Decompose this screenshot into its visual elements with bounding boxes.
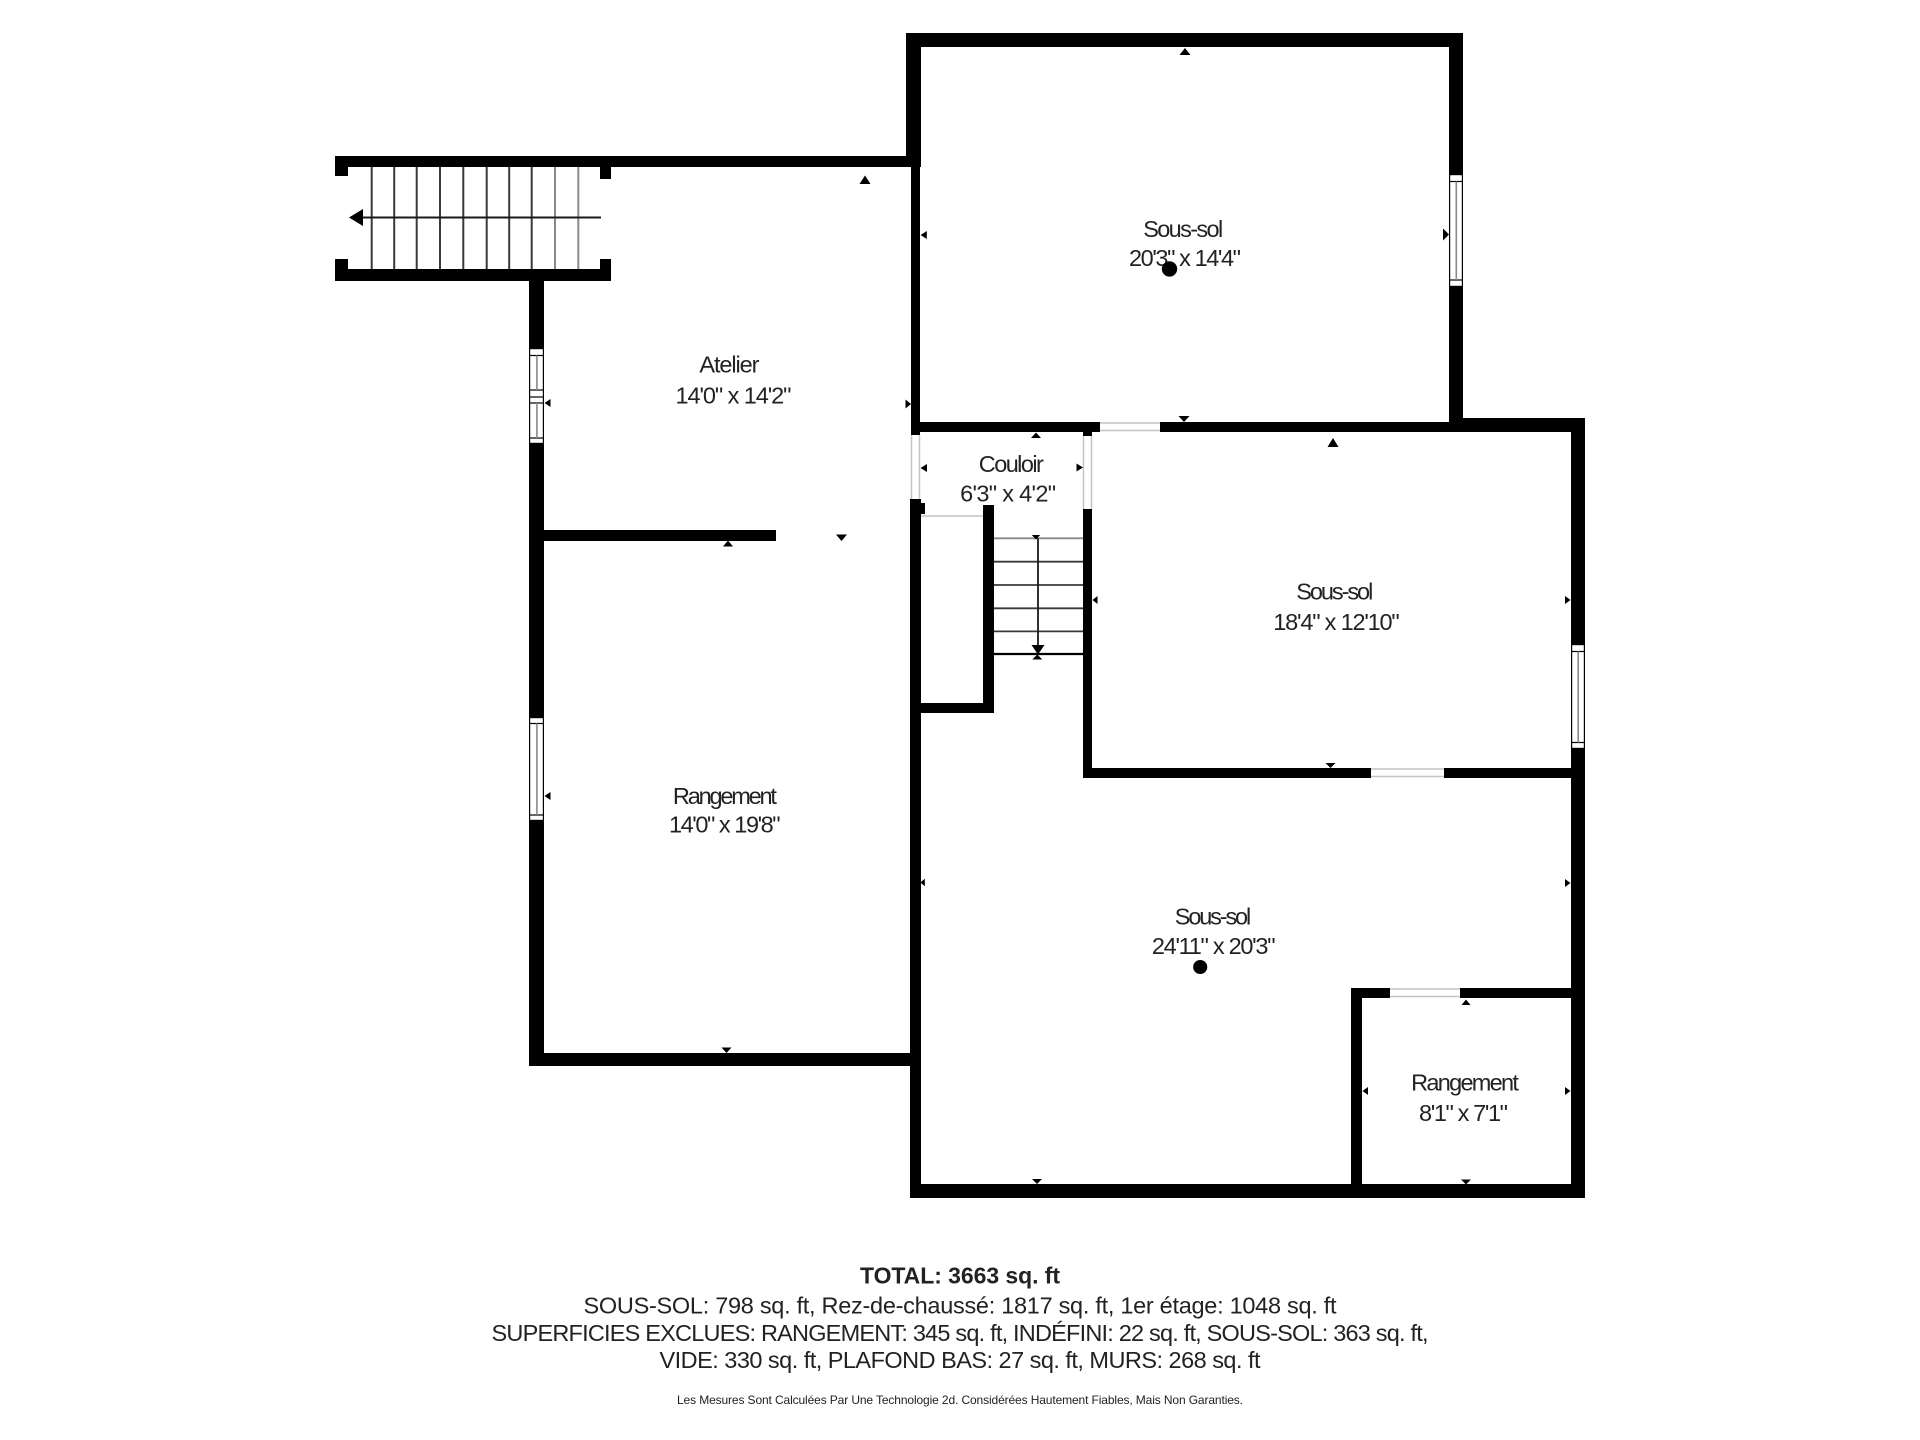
svg-text:Sous-sol: Sous-sol bbox=[1175, 904, 1251, 930]
svg-text:Sous-sol: Sous-sol bbox=[1143, 216, 1223, 242]
svg-text:VIDE: 330 sq. ft, PLAFOND BAS:: VIDE: 330 sq. ft, PLAFOND BAS: 27 sq. ft… bbox=[660, 1347, 1261, 1373]
svg-text:Couloir: Couloir bbox=[979, 451, 1044, 477]
svg-text:Sous-sol: Sous-sol bbox=[1296, 578, 1373, 604]
svg-text:20'3" x 14'4": 20'3" x 14'4" bbox=[1129, 245, 1241, 271]
svg-text:18'4" x 12'10": 18'4" x 12'10" bbox=[1273, 609, 1400, 635]
svg-text:Atelier: Atelier bbox=[699, 352, 759, 378]
svg-text:8'1" x 7'1": 8'1" x 7'1" bbox=[1419, 1100, 1508, 1126]
svg-text:TOTAL: 3663 sq. ft: TOTAL: 3663 sq. ft bbox=[860, 1263, 1060, 1289]
svg-text:14'0" x 19'8": 14'0" x 19'8" bbox=[669, 811, 781, 837]
svg-text:Rangement: Rangement bbox=[1411, 1070, 1519, 1096]
svg-text:24'11" x 20'3": 24'11" x 20'3" bbox=[1152, 933, 1276, 959]
svg-text:Rangement: Rangement bbox=[673, 783, 777, 809]
svg-text:14'0" x 14'2": 14'0" x 14'2" bbox=[676, 382, 792, 408]
svg-text:SOUS-SOL: 798 sq. ft, Rez-de-c: SOUS-SOL: 798 sq. ft, Rez-de-chaussé: 18… bbox=[584, 1292, 1337, 1318]
svg-text:SUPERFICIES EXCLUES: RANGEMENT: SUPERFICIES EXCLUES: RANGEMENT: 345 sq. … bbox=[492, 1320, 1429, 1346]
svg-text:Les Mesures Sont Calculées Par: Les Mesures Sont Calculées Par Une Techn… bbox=[677, 1393, 1243, 1407]
svg-text:6'3" x 4'2": 6'3" x 4'2" bbox=[960, 480, 1056, 506]
